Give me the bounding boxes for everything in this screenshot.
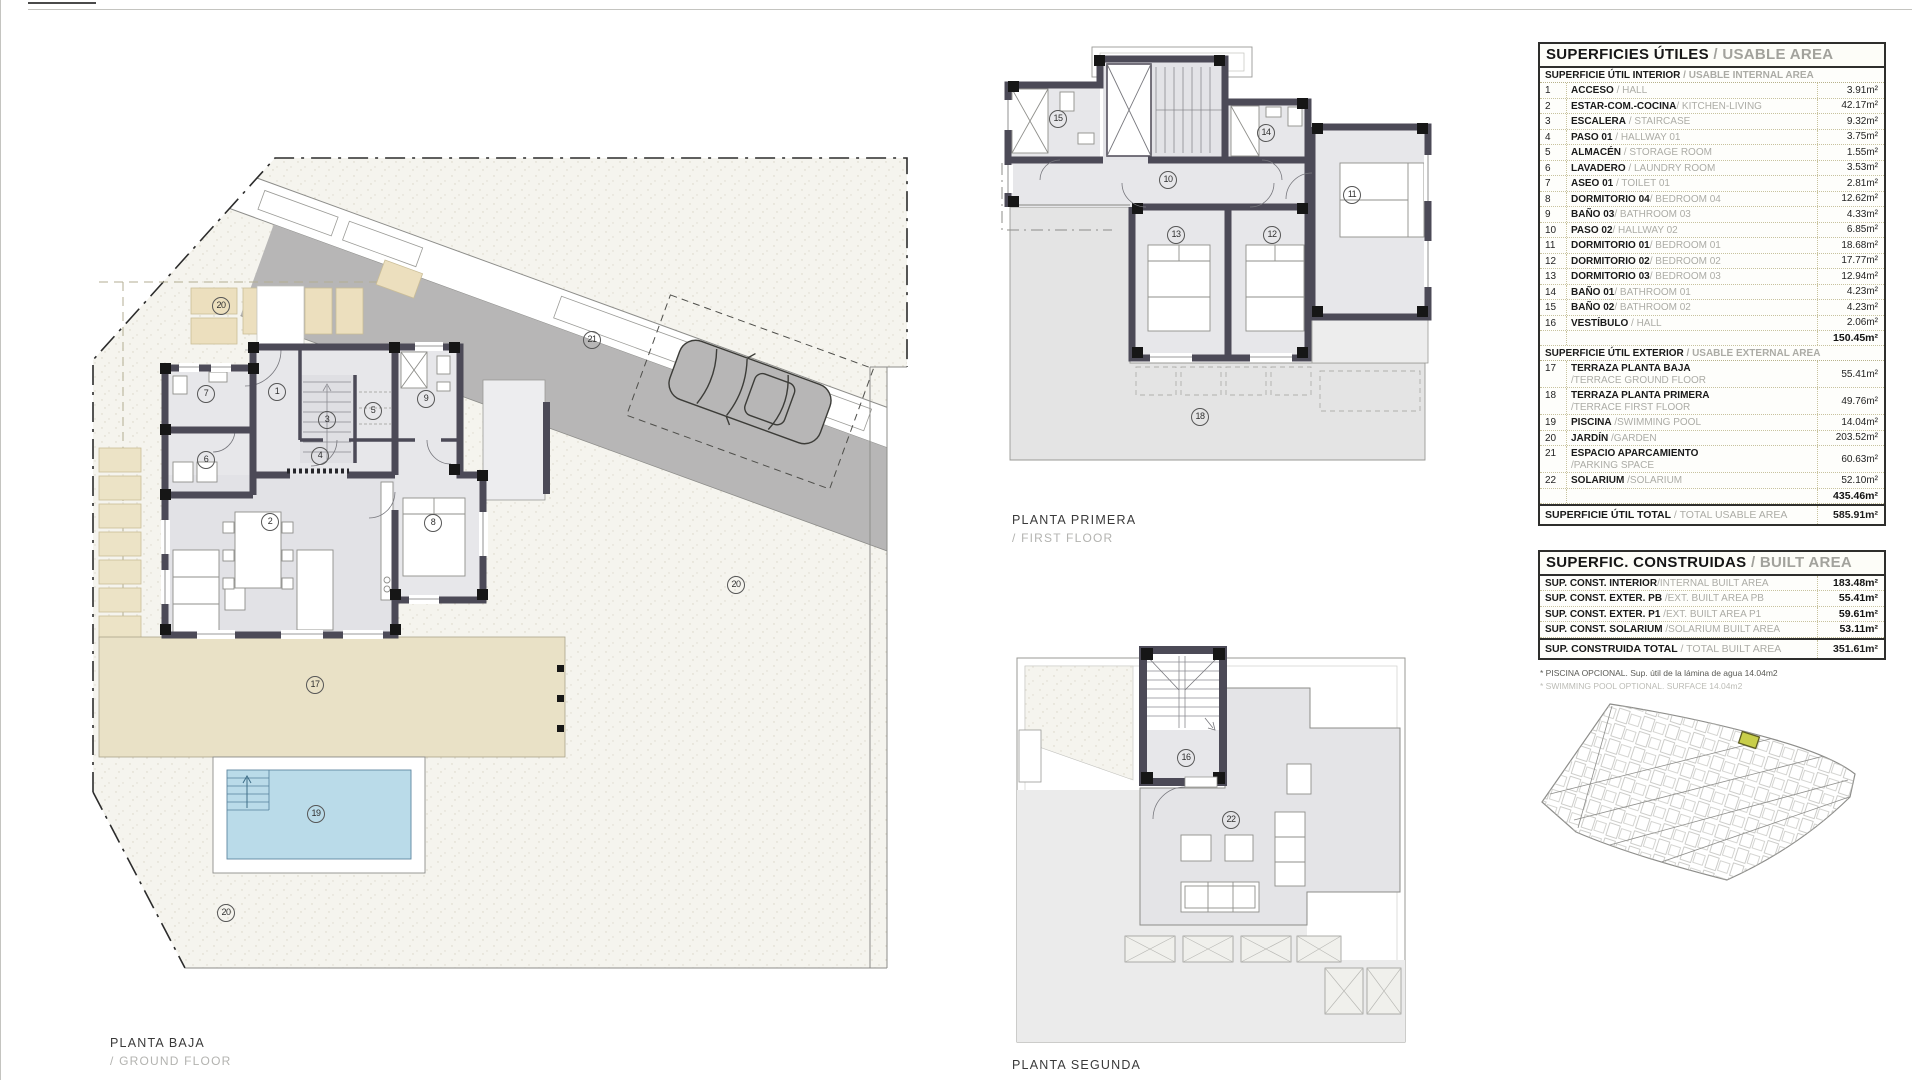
room-marker-11: 11 bbox=[1343, 186, 1361, 204]
row-value: 4.23m² bbox=[1817, 285, 1884, 300]
room-marker-8: 8 bbox=[424, 514, 442, 532]
row-value: 55.41m² bbox=[1817, 591, 1884, 606]
row-name: PASO 01 / HALLWAY 01 bbox=[1567, 130, 1817, 145]
sheet-left-edge bbox=[0, 0, 1, 1080]
row-name: ESTAR-COM.-COCINA/ KITCHEN-LIVING bbox=[1567, 99, 1817, 114]
row-number: 7 bbox=[1540, 176, 1567, 191]
area-row-14: 14BAÑO 01/ BATHROOM 014.23m² bbox=[1540, 285, 1884, 301]
room-marker-1: 1 bbox=[268, 383, 286, 401]
room-marker-21: 21 bbox=[583, 331, 601, 349]
row-number: 20 bbox=[1540, 431, 1567, 446]
built-total-value: 351.61m² bbox=[1817, 640, 1884, 658]
room-marker-20: 20 bbox=[217, 904, 235, 922]
row-value: 60.63m² bbox=[1817, 446, 1884, 472]
footnote-1: * PISCINA OPCIONAL. Sup. útil de la lámi… bbox=[1540, 667, 1886, 680]
row-name: ASEO 01 / TOILET 01 bbox=[1567, 176, 1817, 191]
usable-title-es: SUPERFICIES ÚTILES bbox=[1546, 46, 1709, 63]
row-name: ACCESO / HALL bbox=[1567, 83, 1817, 98]
room-marker-2: 2 bbox=[261, 513, 279, 531]
sheet-top-rule bbox=[28, 9, 1912, 10]
built-row-1: SUP. CONST. INTERIOR/INTERNAL BUILT AREA… bbox=[1540, 576, 1884, 592]
row-number: 9 bbox=[1540, 207, 1567, 222]
footnote-2: * SWIMMING POOL OPTIONAL. SURFACE 14.04m… bbox=[1540, 680, 1886, 693]
row-number: 10 bbox=[1540, 223, 1567, 238]
site-map-drawing bbox=[1540, 698, 1870, 893]
footnotes: * PISCINA OPCIONAL. Sup. útil de la lámi… bbox=[1538, 667, 1886, 693]
row-number: 16 bbox=[1540, 316, 1567, 331]
row-value: 3.75m² bbox=[1817, 130, 1884, 145]
row-name: JARDÍN /GARDEN bbox=[1567, 431, 1817, 446]
subtotal-row-1: 150.45m² bbox=[1540, 331, 1884, 346]
row-value: 2.06m² bbox=[1817, 316, 1884, 331]
section-header: SUPERFICIE ÚTIL EXTERIOR / USABLE EXTERN… bbox=[1540, 346, 1884, 361]
second-floor-label: PLANTA SEGUNDA bbox=[1012, 1058, 1141, 1072]
usable-area-table: SUPERFICIES ÚTILES / USABLE AREA SUPERFI… bbox=[1538, 42, 1886, 526]
built-area-table: SUPERFIC. CONSTRUIDAS / BUILT AREA SUP. … bbox=[1538, 550, 1886, 660]
row-value: 55.41m² bbox=[1817, 361, 1884, 387]
row-value: 42.17m² bbox=[1817, 99, 1884, 114]
row-value: 6.85m² bbox=[1817, 223, 1884, 238]
row-value: 9.32m² bbox=[1817, 114, 1884, 129]
built-row-4: SUP. CONST. SOLARIUM /SOLARIUM BUILT ARE… bbox=[1540, 622, 1884, 638]
sheet-top-tick bbox=[28, 2, 96, 4]
area-row-8: 8DORMITORIO 04/ BEDROOM 0412.62m² bbox=[1540, 192, 1884, 208]
area-row-16: 16VESTÍBULO / HALL2.06m² bbox=[1540, 316, 1884, 332]
row-number: 11 bbox=[1540, 238, 1567, 253]
area-row-21: 21ESPACIO APARCAMIENTO/PARKING SPACE60.6… bbox=[1540, 446, 1884, 473]
room-marker-22: 22 bbox=[1222, 811, 1240, 829]
site-location-map bbox=[1540, 698, 1870, 893]
built-row-3: SUP. CONST. EXTER. P1 /EXT. BUILT AREA P… bbox=[1540, 607, 1884, 623]
row-name: SUP. CONST. INTERIOR/INTERNAL BUILT AREA bbox=[1540, 576, 1817, 591]
room-marker-12: 12 bbox=[1263, 226, 1281, 244]
area-row-5: 5ALMACÉN / STORAGE ROOM1.55m² bbox=[1540, 145, 1884, 161]
room-marker-20: 20 bbox=[727, 576, 745, 594]
row-number: 3 bbox=[1540, 114, 1567, 129]
area-row-3: 3ESCALERA / STAIRCASE9.32m² bbox=[1540, 114, 1884, 130]
room-marker-3: 3 bbox=[318, 411, 336, 429]
ground-floor-label-es: PLANTA BAJA bbox=[110, 1036, 205, 1050]
row-name: SOLARIUM /SOLARIUM bbox=[1567, 473, 1817, 488]
usable-total-row: SUPERFICIE ÚTIL TOTAL / TOTAL USABLE ARE… bbox=[1540, 504, 1884, 524]
row-number: 21 bbox=[1540, 446, 1567, 472]
usable-area-table-title: SUPERFICIES ÚTILES / USABLE AREA bbox=[1538, 42, 1886, 68]
usable-total-label: SUPERFICIE ÚTIL TOTAL / TOTAL USABLE ARE… bbox=[1540, 506, 1817, 524]
site-map-plots bbox=[1540, 698, 1870, 893]
area-row-2: 2ESTAR-COM.-COCINA/ KITCHEN-LIVING42.17m… bbox=[1540, 99, 1884, 115]
row-name: BAÑO 02/ BATHROOM 02 bbox=[1567, 300, 1817, 315]
row-name: ESPACIO APARCAMIENTO/PARKING SPACE bbox=[1567, 446, 1817, 472]
row-name: DORMITORIO 03/ BEDROOM 03 bbox=[1567, 269, 1817, 284]
row-name: TERRAZA PLANTA BAJA/TERRACE GROUND FLOOR bbox=[1567, 361, 1817, 387]
usable-title-en: / USABLE AREA bbox=[1709, 46, 1834, 63]
room-marker-16: 16 bbox=[1177, 749, 1195, 767]
subtotal-row-2: 435.46m² bbox=[1540, 489, 1884, 504]
row-value: 4.33m² bbox=[1817, 207, 1884, 222]
built-area-table-body: SUP. CONST. INTERIOR/INTERNAL BUILT AREA… bbox=[1538, 576, 1886, 660]
room-marker-13: 13 bbox=[1167, 226, 1185, 244]
area-row-6: 6LAVADERO / LAUNDRY ROOM3.53m² bbox=[1540, 161, 1884, 177]
area-row-12: 12DORMITORIO 02/ BEDROOM 0217.77m² bbox=[1540, 254, 1884, 270]
row-value: 183.48m² bbox=[1817, 576, 1884, 591]
built-total-label: SUP. CONSTRUIDA TOTAL / TOTAL BUILT AREA bbox=[1540, 640, 1817, 658]
subtotal-value: 435.46m² bbox=[1817, 489, 1884, 503]
built-title-es: SUPERFIC. CONSTRUIDAS bbox=[1546, 554, 1746, 571]
room-marker-7: 7 bbox=[197, 385, 215, 403]
row-value: 12.94m² bbox=[1817, 269, 1884, 284]
ground-floor-plan: 123456789171920202021 bbox=[85, 130, 915, 1060]
row-value: 2.81m² bbox=[1817, 176, 1884, 191]
built-total-row: SUP. CONSTRUIDA TOTAL / TOTAL BUILT AREA… bbox=[1540, 638, 1884, 658]
usable-area-table-body: SUPERFICIE ÚTIL INTERIOR / USABLE INTERN… bbox=[1538, 68, 1886, 526]
row-name: SUP. CONST. SOLARIUM /SOLARIUM BUILT ARE… bbox=[1540, 622, 1817, 637]
row-value: 53.11m² bbox=[1817, 622, 1884, 637]
ground-floor-label: PLANTA BAJA / GROUND FLOOR bbox=[110, 1036, 231, 1068]
area-row-11: 11DORMITORIO 01/ BEDROOM 0118.68m² bbox=[1540, 238, 1884, 254]
row-value: 18.68m² bbox=[1817, 238, 1884, 253]
room-marker-10: 10 bbox=[1159, 171, 1177, 189]
row-name: DORMITORIO 02/ BEDROOM 02 bbox=[1567, 254, 1817, 269]
room-marker-15: 15 bbox=[1049, 110, 1067, 128]
row-name: SUP. CONST. EXTER. P1 /EXT. BUILT AREA P… bbox=[1540, 607, 1817, 622]
area-row-15: 15BAÑO 02/ BATHROOM 024.23m² bbox=[1540, 300, 1884, 316]
area-row-20: 20JARDÍN /GARDEN203.52m² bbox=[1540, 431, 1884, 447]
room-marker-6: 6 bbox=[197, 451, 215, 469]
room-marker-4: 4 bbox=[311, 447, 329, 465]
row-value: 14.04m² bbox=[1817, 415, 1884, 430]
row-name: LAVADERO / LAUNDRY ROOM bbox=[1567, 161, 1817, 176]
row-name: ALMACÉN / STORAGE ROOM bbox=[1567, 145, 1817, 160]
room-marker-5: 5 bbox=[364, 402, 382, 420]
first-floor-label-en: / FIRST FLOOR bbox=[1012, 531, 1136, 545]
first-floor-label: PLANTA PRIMERA / FIRST FLOOR bbox=[1012, 513, 1136, 545]
row-value: 3.53m² bbox=[1817, 161, 1884, 176]
row-number: 2 bbox=[1540, 99, 1567, 114]
row-name: ESCALERA / STAIRCASE bbox=[1567, 114, 1817, 129]
row-value: 1.55m² bbox=[1817, 145, 1884, 160]
row-number: 12 bbox=[1540, 254, 1567, 269]
area-row-19: 19PISCINA /SWIMMING POOL14.04m² bbox=[1540, 415, 1884, 431]
room-marker-9: 9 bbox=[417, 390, 435, 408]
room-marker-18: 18 bbox=[1191, 408, 1209, 426]
row-number: 14 bbox=[1540, 285, 1567, 300]
ground-floor-room-markers: 123456789171920202021 bbox=[85, 130, 915, 1060]
built-title-en: / BUILT AREA bbox=[1746, 554, 1852, 571]
usable-total-value: 585.91m² bbox=[1817, 506, 1884, 524]
row-name: DORMITORIO 01/ BEDROOM 01 bbox=[1567, 238, 1817, 253]
subtotal-value: 150.45m² bbox=[1817, 331, 1884, 345]
area-row-18: 18TERRAZA PLANTA PRIMERA/TERRACE FIRST F… bbox=[1540, 388, 1884, 415]
row-number: 13 bbox=[1540, 269, 1567, 284]
row-name: PASO 02/ HALLWAY 02 bbox=[1567, 223, 1817, 238]
row-number: 5 bbox=[1540, 145, 1567, 160]
row-number: 6 bbox=[1540, 161, 1567, 176]
row-value: 49.76m² bbox=[1817, 388, 1884, 414]
room-marker-19: 19 bbox=[307, 805, 325, 823]
area-row-7: 7ASEO 01 / TOILET 012.81m² bbox=[1540, 176, 1884, 192]
room-marker-17: 17 bbox=[306, 676, 324, 694]
second-floor-room-markers: 1622 bbox=[995, 630, 1415, 1050]
room-marker-14: 14 bbox=[1257, 124, 1275, 142]
row-number: 1 bbox=[1540, 83, 1567, 98]
row-value: 12.62m² bbox=[1817, 192, 1884, 207]
second-floor-label-es: PLANTA SEGUNDA bbox=[1012, 1058, 1141, 1072]
first-floor-label-es: PLANTA PRIMERA bbox=[1012, 513, 1136, 527]
row-number: 18 bbox=[1540, 388, 1567, 414]
first-floor-plan: 15141011131218 bbox=[1000, 45, 1440, 515]
section-header: SUPERFICIE ÚTIL INTERIOR / USABLE INTERN… bbox=[1540, 68, 1884, 83]
row-name: DORMITORIO 04/ BEDROOM 04 bbox=[1567, 192, 1817, 207]
row-number: 17 bbox=[1540, 361, 1567, 387]
row-value: 203.52m² bbox=[1817, 431, 1884, 446]
row-value: 52.10m² bbox=[1817, 473, 1884, 488]
row-name: TERRAZA PLANTA PRIMERA/TERRACE FIRST FLO… bbox=[1567, 388, 1817, 414]
row-number: 4 bbox=[1540, 130, 1567, 145]
row-value: 4.23m² bbox=[1817, 300, 1884, 315]
row-number: 19 bbox=[1540, 415, 1567, 430]
first-floor-room-markers: 15141011131218 bbox=[1000, 45, 1440, 515]
area-tables-column: SUPERFICIES ÚTILES / USABLE AREA SUPERFI… bbox=[1538, 42, 1886, 693]
row-name: VESTÍBULO / HALL bbox=[1567, 316, 1817, 331]
area-row-1: 1ACCESO / HALL3.91m² bbox=[1540, 83, 1884, 99]
row-name: PISCINA /SWIMMING POOL bbox=[1567, 415, 1817, 430]
row-number: 15 bbox=[1540, 300, 1567, 315]
row-number: 8 bbox=[1540, 192, 1567, 207]
area-row-10: 10PASO 02/ HALLWAY 026.85m² bbox=[1540, 223, 1884, 239]
row-number: 22 bbox=[1540, 473, 1567, 488]
built-area-table-title: SUPERFIC. CONSTRUIDAS / BUILT AREA bbox=[1538, 550, 1886, 576]
row-value: 17.77m² bbox=[1817, 254, 1884, 269]
area-row-13: 13DORMITORIO 03/ BEDROOM 0312.94m² bbox=[1540, 269, 1884, 285]
row-name: BAÑO 01/ BATHROOM 01 bbox=[1567, 285, 1817, 300]
area-row-9: 9BAÑO 03/ BATHROOM 034.33m² bbox=[1540, 207, 1884, 223]
ground-floor-label-en: / GROUND FLOOR bbox=[110, 1054, 231, 1068]
row-name: SUP. CONST. EXTER. PB /EXT. BUILT AREA P… bbox=[1540, 591, 1817, 606]
room-marker-20: 20 bbox=[212, 297, 230, 315]
area-row-17: 17TERRAZA PLANTA BAJA/TERRACE GROUND FLO… bbox=[1540, 361, 1884, 388]
built-row-2: SUP. CONST. EXTER. PB /EXT. BUILT AREA P… bbox=[1540, 591, 1884, 607]
second-floor-plan: 1622 bbox=[995, 630, 1415, 1050]
area-row-22: 22SOLARIUM /SOLARIUM52.10m² bbox=[1540, 473, 1884, 489]
row-value: 3.91m² bbox=[1817, 83, 1884, 98]
row-name: BAÑO 03/ BATHROOM 03 bbox=[1567, 207, 1817, 222]
row-value: 59.61m² bbox=[1817, 607, 1884, 622]
area-row-4: 4PASO 01 / HALLWAY 013.75m² bbox=[1540, 130, 1884, 146]
